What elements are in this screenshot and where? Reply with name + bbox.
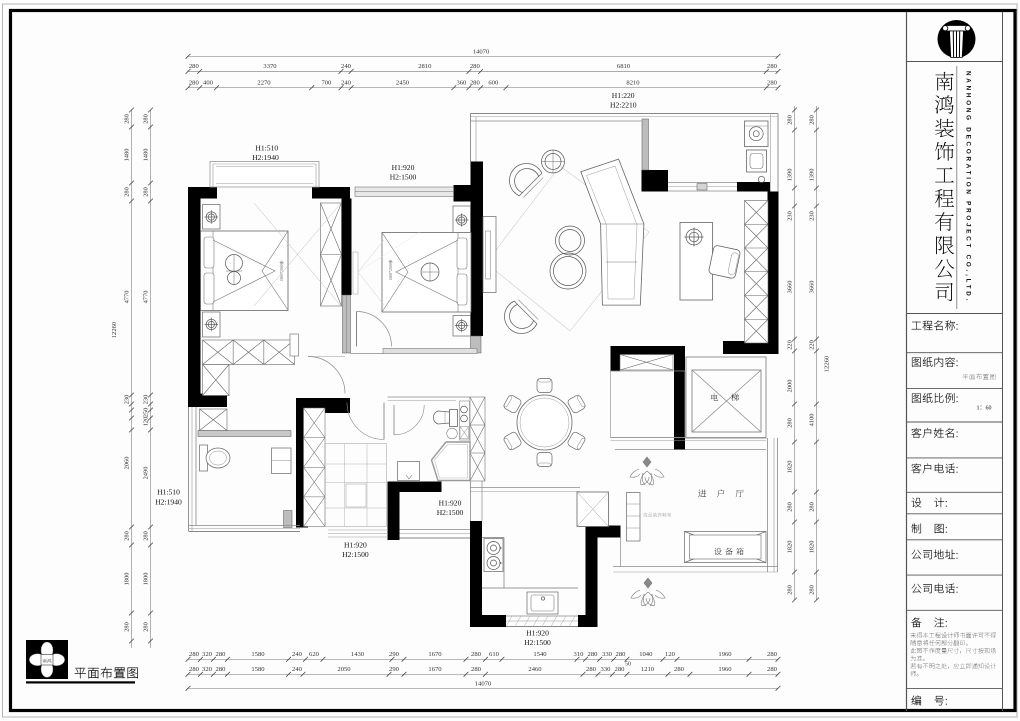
svg-text:1670: 1670 xyxy=(428,651,442,658)
svg-text:H2:1500: H2:1500 xyxy=(390,173,417,182)
svg-text:2060: 2060 xyxy=(124,457,131,470)
svg-text:290: 290 xyxy=(389,666,400,673)
svg-text:280: 280 xyxy=(787,502,794,512)
svg-text:1390: 1390 xyxy=(809,169,816,182)
svg-text:14070: 14070 xyxy=(475,680,492,687)
svg-text:2050: 2050 xyxy=(337,666,351,673)
svg-text:280: 280 xyxy=(615,666,626,673)
svg-text:H1:920: H1:920 xyxy=(392,163,415,172)
svg-text:H1:920: H1:920 xyxy=(439,499,462,508)
svg-text:280: 280 xyxy=(471,666,482,673)
svg-text:2450: 2450 xyxy=(396,80,410,87)
svg-text:280: 280 xyxy=(616,651,627,658)
svg-text:2810: 2810 xyxy=(418,63,432,70)
svg-text:1800: 1800 xyxy=(143,573,150,586)
svg-text:1820: 1820 xyxy=(787,541,794,554)
svg-text:1580: 1580 xyxy=(251,666,265,673)
svg-text:280: 280 xyxy=(767,651,778,658)
svg-text:1：60: 1：60 xyxy=(976,406,991,412)
svg-text:610: 610 xyxy=(489,651,500,658)
svg-text:4770: 4770 xyxy=(143,291,150,304)
svg-text:240: 240 xyxy=(292,666,303,673)
svg-text:280: 280 xyxy=(586,666,597,673)
svg-text:280: 280 xyxy=(470,80,481,87)
svg-text:280: 280 xyxy=(124,187,131,197)
svg-text:280: 280 xyxy=(124,622,131,632)
svg-text:310: 310 xyxy=(574,651,585,658)
svg-text:H2:1940: H2:1940 xyxy=(252,153,279,162)
svg-text:1670: 1670 xyxy=(428,666,442,673)
svg-text:2000: 2000 xyxy=(787,380,794,393)
svg-text:280: 280 xyxy=(588,651,599,658)
svg-text:330: 330 xyxy=(602,651,613,658)
svg-text:H1:510: H1:510 xyxy=(157,488,180,497)
svg-text:290: 290 xyxy=(389,651,400,658)
svg-text:3660: 3660 xyxy=(809,281,816,294)
svg-text:230: 230 xyxy=(809,211,816,221)
svg-text:14070: 14070 xyxy=(473,49,490,56)
svg-text:12260: 12260 xyxy=(111,321,118,338)
svg-text:H2:1500: H2:1500 xyxy=(524,638,551,647)
svg-text:1800: 1800 xyxy=(124,573,131,586)
svg-text:H2:2210: H2:2210 xyxy=(610,101,637,110)
svg-text:4100: 4100 xyxy=(809,414,816,427)
svg-text:1210: 1210 xyxy=(641,666,655,673)
svg-text:120: 120 xyxy=(143,417,150,427)
svg-text:2490: 2490 xyxy=(143,467,150,480)
svg-text:3660: 3660 xyxy=(787,281,794,294)
svg-text:230: 230 xyxy=(143,395,150,405)
svg-text:280: 280 xyxy=(787,418,794,428)
svg-text:280: 280 xyxy=(809,502,816,512)
svg-text:320: 320 xyxy=(202,666,213,673)
svg-text:1800*2000床: 1800*2000床 xyxy=(279,260,284,281)
svg-text:NANHONG DECORATION PROJECT CO.: NANHONG DECORATION PROJECT CO.,LTD. xyxy=(965,71,972,303)
svg-text:1480: 1480 xyxy=(124,149,131,162)
svg-text:1040: 1040 xyxy=(639,651,653,658)
svg-text:280: 280 xyxy=(471,651,482,658)
svg-text:240: 240 xyxy=(341,63,352,70)
svg-text:8210: 8210 xyxy=(626,80,640,87)
svg-text:600: 600 xyxy=(488,80,499,87)
svg-text:280: 280 xyxy=(767,80,778,87)
svg-text:240: 240 xyxy=(292,651,303,658)
svg-text:H2:1500: H2:1500 xyxy=(342,550,369,559)
svg-text:1430: 1430 xyxy=(351,651,365,658)
svg-text:2460: 2460 xyxy=(528,666,542,673)
svg-text:H1:220: H1:220 xyxy=(612,91,635,100)
svg-text:6810: 6810 xyxy=(617,63,631,70)
svg-text:280: 280 xyxy=(809,115,816,125)
svg-text:280: 280 xyxy=(787,585,794,595)
svg-text:280: 280 xyxy=(674,666,685,673)
svg-text:1480: 1480 xyxy=(143,149,150,162)
svg-text:360: 360 xyxy=(456,80,467,87)
svg-text:280: 280 xyxy=(470,63,481,70)
svg-text:1960: 1960 xyxy=(718,666,732,673)
svg-text:280: 280 xyxy=(124,114,131,124)
svg-text:280: 280 xyxy=(124,531,131,541)
svg-text:280: 280 xyxy=(143,531,150,541)
svg-text:1800*2000床: 1800*2000床 xyxy=(388,259,393,280)
svg-text:1540: 1540 xyxy=(533,651,547,658)
svg-text:3370: 3370 xyxy=(263,63,277,70)
svg-text:H1:920: H1:920 xyxy=(344,541,367,550)
svg-text:280: 280 xyxy=(809,585,816,595)
svg-text:1390: 1390 xyxy=(787,169,794,182)
svg-text:280: 280 xyxy=(216,651,227,658)
svg-text:1820: 1820 xyxy=(787,461,794,474)
svg-text:220: 220 xyxy=(787,340,794,350)
svg-text:280: 280 xyxy=(189,651,200,658)
svg-text:400: 400 xyxy=(203,80,214,87)
svg-text:320: 320 xyxy=(202,651,213,658)
svg-text:1580: 1580 xyxy=(251,651,265,658)
svg-text:1820: 1820 xyxy=(809,541,816,554)
svg-text:2270: 2270 xyxy=(257,80,271,87)
svg-text:280: 280 xyxy=(143,622,150,632)
svg-text:280: 280 xyxy=(767,63,778,70)
svg-text:1960: 1960 xyxy=(718,651,732,658)
svg-text:230: 230 xyxy=(124,395,131,405)
svg-text:H1:920: H1:920 xyxy=(526,629,549,638)
svg-text:50: 50 xyxy=(625,662,631,668)
svg-text:280: 280 xyxy=(143,114,150,124)
svg-text:H2:1940: H2:1940 xyxy=(155,498,182,507)
svg-text:700: 700 xyxy=(321,80,332,87)
svg-text:280: 280 xyxy=(143,187,150,197)
svg-text:280: 280 xyxy=(767,666,778,673)
svg-text:240: 240 xyxy=(341,80,352,87)
svg-text:H2:1500: H2:1500 xyxy=(437,508,464,517)
svg-text:120: 120 xyxy=(665,651,676,658)
svg-text:620: 620 xyxy=(309,651,320,658)
svg-text:280: 280 xyxy=(189,666,200,673)
svg-text:280: 280 xyxy=(216,666,227,673)
svg-text:230: 230 xyxy=(787,211,794,221)
svg-text:H1:510: H1:510 xyxy=(255,144,278,153)
svg-text:12260: 12260 xyxy=(824,355,831,372)
svg-text:280: 280 xyxy=(787,115,794,125)
svg-text:330: 330 xyxy=(601,666,612,673)
svg-text:220: 220 xyxy=(809,340,816,350)
svg-text:4770: 4770 xyxy=(124,291,131,304)
svg-text:280: 280 xyxy=(189,63,200,70)
svg-text:280: 280 xyxy=(189,80,200,87)
